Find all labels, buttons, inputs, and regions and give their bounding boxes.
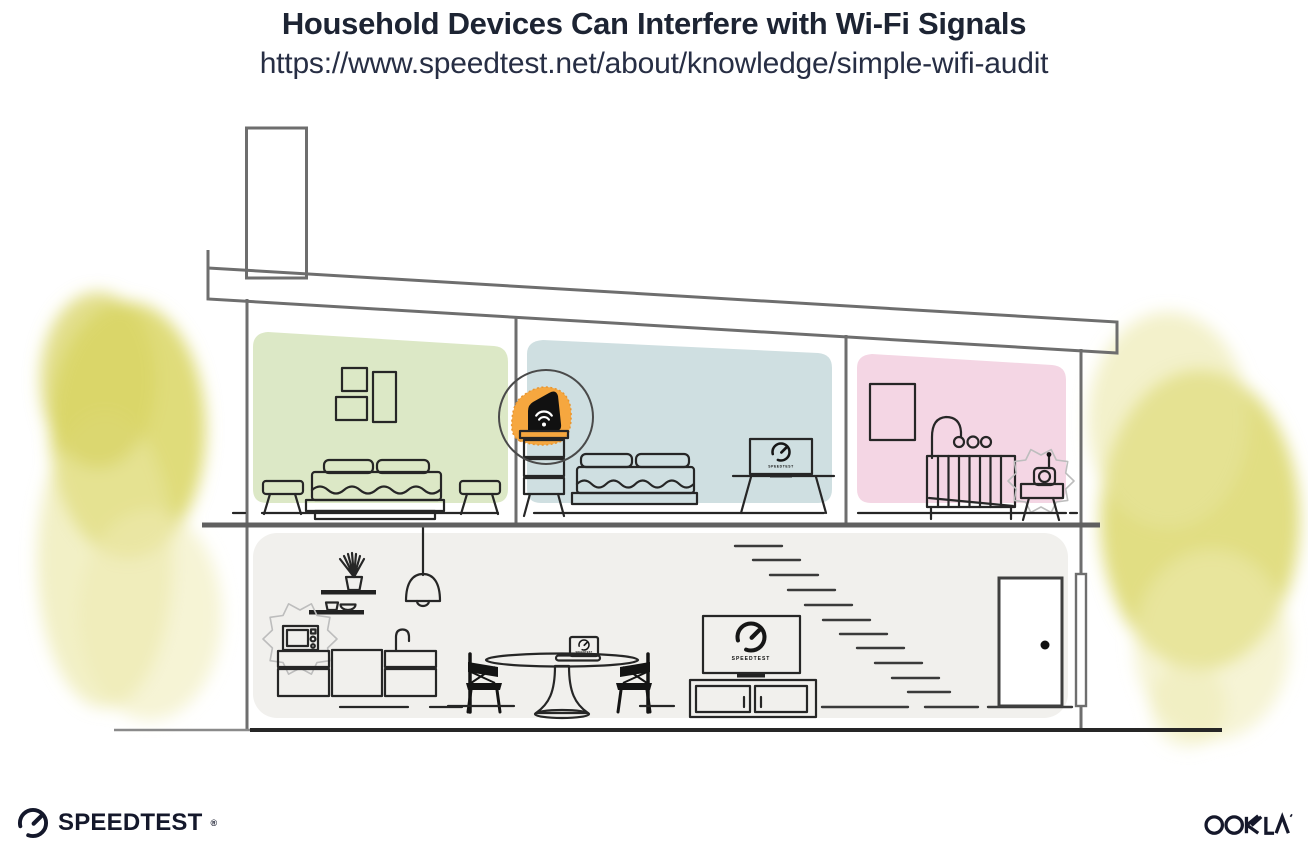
- speedtest-logo-text: SPEEDTEST: [58, 809, 203, 837]
- house-cross-section-illustration: SPEEDTEST: [0, 0, 1308, 861]
- laptop-screen-label: SPEEDTEST: [576, 651, 593, 654]
- tv-stand: [737, 674, 765, 678]
- front-door: [988, 574, 1086, 707]
- green-room-wall: [253, 332, 508, 503]
- foliage-right: [1088, 312, 1300, 747]
- tv-screen-label: SPEEDTEST: [732, 656, 771, 662]
- bedroom-green: [253, 332, 508, 519]
- foliage-blob: [1150, 663, 1226, 747]
- source-url: https://www.speedtest.net/about/knowledg…: [0, 47, 1308, 81]
- speedtest-gauge-icon: [16, 806, 50, 840]
- wifi-infographic-page: Household Devices Can Interfere with Wi-…: [0, 0, 1308, 861]
- registered-mark: ®: [211, 818, 218, 828]
- header: Household Devices Can Interfere with Wi-…: [0, 6, 1308, 81]
- door-panel: [999, 578, 1062, 706]
- foliage-blob: [1088, 312, 1248, 528]
- chimney: [247, 128, 307, 278]
- speedtest-logo: SPEEDTEST®: [16, 806, 217, 840]
- ground-floor-room: [253, 533, 1068, 718]
- door-knob: [1041, 641, 1050, 650]
- foliage-blob: [40, 292, 156, 468]
- bedroom-blue: SPEEDTEST: [527, 340, 834, 513]
- monitor-screen-label: SPEEDTEST: [768, 465, 794, 469]
- ookla-logo: OOKLA: [1204, 811, 1294, 837]
- nursery-pink: [857, 354, 1074, 520]
- page-title: Household Devices Can Interfere with Wi-…: [0, 6, 1308, 42]
- antenna-tip: [1047, 452, 1052, 457]
- blue-room-wall: [527, 340, 832, 503]
- foliage-blob: [78, 510, 222, 720]
- ookla-wordmark-icon: [1204, 811, 1294, 837]
- foliage-left: [37, 292, 222, 720]
- door-sidelight: [1076, 574, 1086, 706]
